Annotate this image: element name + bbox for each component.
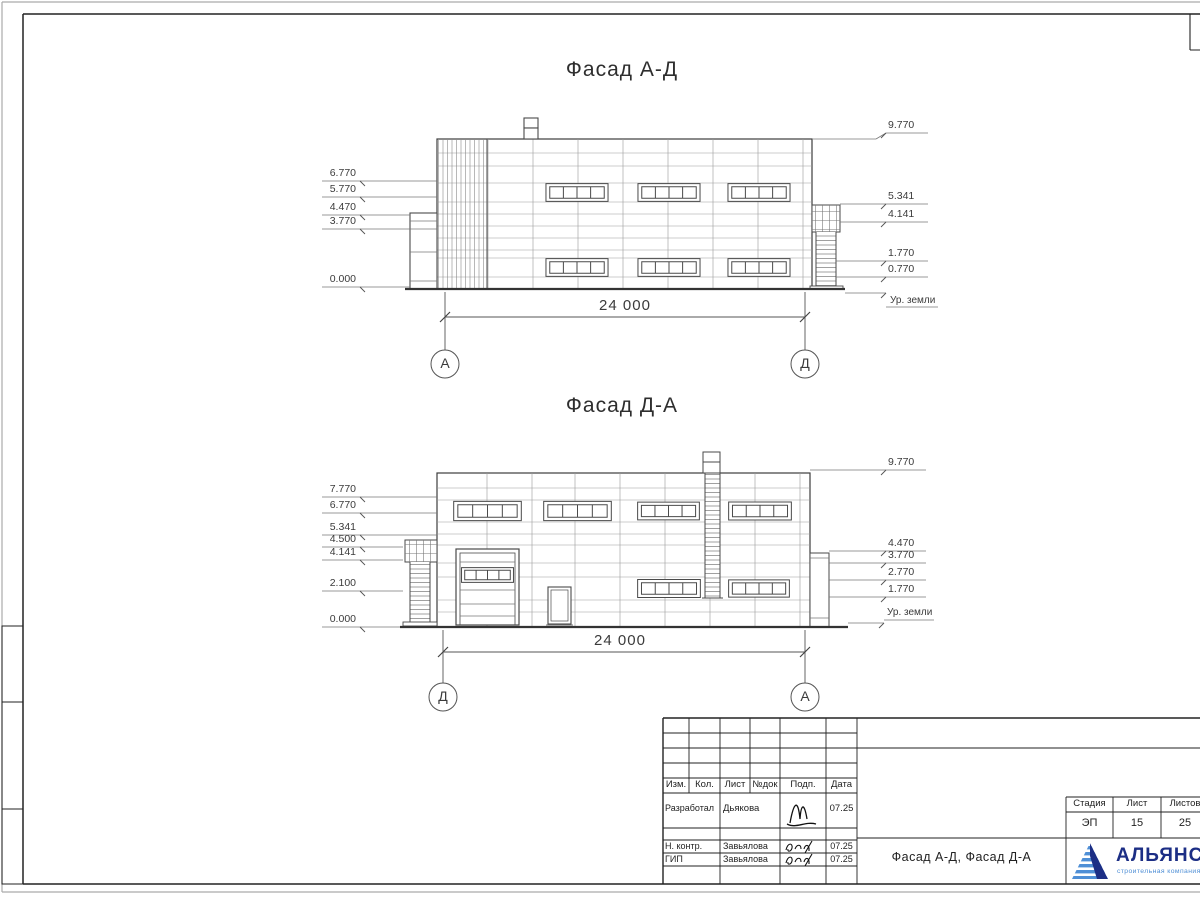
ground-level-label: Ур. земли — [890, 295, 935, 306]
drawing-canvas — [0, 0, 1200, 900]
dimension-label: 24 000 — [540, 633, 700, 650]
tb-col-doc: №док — [750, 780, 780, 790]
elevation-mark: 0.000 — [296, 274, 356, 286]
tb-role: Н. контр. — [665, 842, 702, 852]
elevation-mark: 2.100 — [296, 578, 356, 590]
facade-d-a-drawing — [322, 452, 934, 711]
elevation-mark: 4.470 — [296, 202, 356, 214]
elevation-mark: 3.770 — [888, 550, 914, 562]
elevation-mark: 0.770 — [888, 264, 914, 276]
axis-label: Д — [791, 356, 819, 371]
alliance-logo-subtitle: строительная компания — [1117, 868, 1200, 875]
tb-stage-col: Стадия — [1066, 799, 1113, 809]
roof-vent — [524, 118, 538, 139]
elevation-mark: 6.770 — [296, 168, 356, 180]
signature — [787, 805, 816, 826]
facade-a-d-drawing — [322, 118, 938, 378]
entrance-door — [546, 587, 573, 625]
elevation-mark: 5.770 — [296, 184, 356, 196]
dimension-label: 24 000 — [545, 298, 705, 315]
elevation-mark: 1.770 — [888, 584, 914, 596]
alliance-logo-icon — [1072, 843, 1108, 879]
tb-date: 07.25 — [826, 804, 857, 814]
elevation-mark: 4.141 — [296, 547, 356, 559]
elevation-mark: 4.470 — [888, 538, 914, 550]
facade1-title: Фасад А-Д — [537, 58, 707, 81]
tb-col-list: Лист — [720, 780, 750, 790]
signature — [786, 841, 812, 866]
alliance-logo-text: АЛЬЯНС — [1116, 846, 1200, 867]
facade2-title: Фасад Д-А — [537, 394, 707, 417]
left-annex — [410, 213, 437, 289]
elevation-mark: 9.770 — [888, 457, 914, 469]
elevation-mark: 7.770 — [296, 484, 356, 496]
elevation-mark: 5.341 — [296, 522, 356, 534]
axis-label: Д — [429, 689, 457, 704]
tb-role: ГИП — [665, 855, 683, 865]
tb-stage-value: ЭП — [1066, 817, 1113, 829]
axis-label: А — [431, 356, 459, 371]
axis-label: А — [791, 689, 819, 704]
ground-level-label: Ур. земли — [887, 607, 932, 618]
tb-doc-title: Фасад А-Д, Фасад Д-А — [859, 851, 1064, 865]
tb-col-podp: Подп. — [780, 780, 826, 790]
tb-col-data: Дата — [826, 780, 857, 790]
elevation-mark: 4.141 — [888, 209, 914, 221]
elevation-mark: 1.770 — [888, 248, 914, 260]
tb-sheets-col: Листов — [1161, 799, 1200, 809]
tb-name: Завьялова — [723, 842, 768, 852]
sheet-edge — [2, 2, 1200, 892]
tb-col-kol: Кол. — [689, 780, 720, 790]
elevation-mark: 0.000 — [296, 614, 356, 626]
tb-col-izm: Изм. — [663, 780, 689, 790]
elevation-mark: 4.500 — [296, 534, 356, 546]
elevation-mark: 6.770 — [296, 500, 356, 512]
corrugated-panel — [437, 139, 487, 289]
tb-name: Дьякова — [723, 804, 759, 814]
tb-name: Завьялова — [723, 855, 768, 865]
tb-sheets-value: 25 — [1161, 817, 1200, 829]
tb-date: 07.25 — [826, 842, 857, 852]
drawing-sheet: { "facade1": { "title": "Фасад А-Д", "di… — [0, 0, 1200, 900]
garage-door — [456, 549, 519, 625]
elevation-mark: 2.770 — [888, 567, 914, 579]
right-annex — [810, 553, 829, 627]
tb-sheet-col: Лист — [1113, 799, 1161, 809]
elevation-mark: 3.770 — [296, 216, 356, 228]
right-annex-stair — [810, 205, 843, 289]
tb-role: Разработал — [665, 804, 714, 814]
tb-date: 07.25 — [826, 855, 857, 865]
left-annex-stair — [403, 540, 437, 626]
elevation-mark: 9.770 — [888, 120, 914, 132]
elevation-mark: 5.341 — [888, 191, 914, 203]
tb-sheet-value: 15 — [1113, 817, 1161, 829]
roof-ladder — [702, 452, 723, 598]
